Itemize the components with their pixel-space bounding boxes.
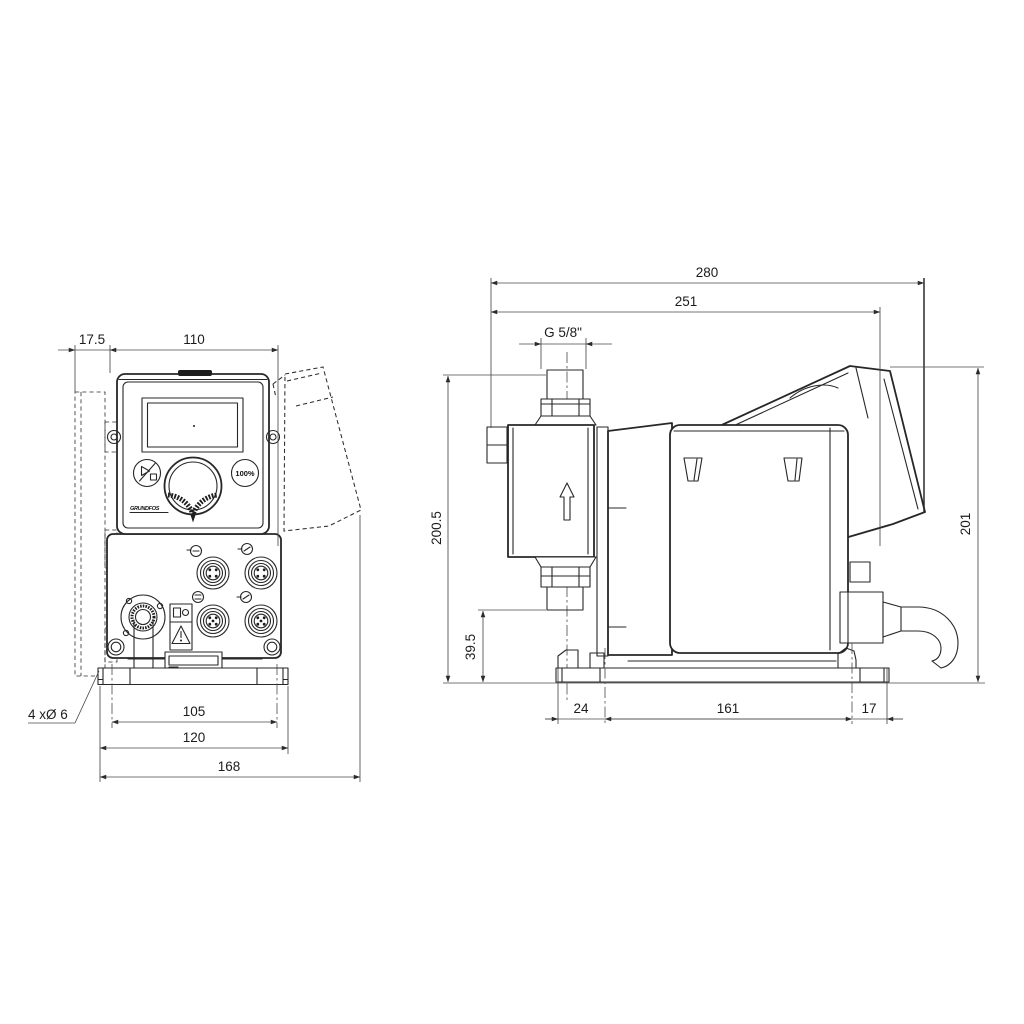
dosing-head <box>487 370 596 610</box>
front-view: 100% GRUNDFOS <box>28 332 361 782</box>
head-flange <box>597 427 608 656</box>
discharge-nut <box>541 399 590 416</box>
dim-suction-height: 39.5 <box>463 634 478 660</box>
cable-gland-taper <box>883 602 901 637</box>
dim-overall-width: 168 <box>218 759 241 774</box>
holes-label: 4 xØ 6 <box>28 707 68 722</box>
boost-100-label: 100% <box>235 469 255 478</box>
dim-offset: 17.5 <box>79 332 105 347</box>
dim-hole-spacing-side: 161 <box>717 701 740 716</box>
dimensional-drawing: 100% GRUNDFOS <box>0 0 1024 1024</box>
side-view: 280 251 G 5/8" 200.5 39.5 201 <box>429 265 985 724</box>
top-tab <box>178 370 212 376</box>
suction-thread <box>547 587 583 610</box>
dim-base-rear: 17 <box>861 701 876 716</box>
mains-cable <box>918 607 958 668</box>
dim-thread: G 5/8" <box>544 325 582 340</box>
lower-housing <box>107 534 281 658</box>
brand-logo: GRUNDFOS <box>130 506 160 512</box>
base-plate <box>98 668 288 685</box>
rear-thread-stub <box>850 562 870 582</box>
dim-cover-depth: 251 <box>675 294 698 309</box>
cover-open-dashed <box>273 367 361 531</box>
discharge-thread <box>547 370 583 399</box>
rear-connections <box>838 562 958 668</box>
cable-connector-box <box>840 592 883 643</box>
control-panel: 100% GRUNDFOS <box>108 370 280 534</box>
dim-base-front: 24 <box>573 701 589 716</box>
dim-overall-height: 201 <box>958 513 973 536</box>
dim-discharge-height: 200.5 <box>429 511 444 545</box>
dim-hole-spacing: 105 <box>183 704 206 719</box>
dim-overall-depth: 280 <box>696 265 719 280</box>
dim-plate-width: 120 <box>183 730 206 745</box>
drive-housing <box>597 423 848 656</box>
drawing-svg: 100% GRUNDFOS <box>0 0 1024 1024</box>
dim-width: 110 <box>183 332 205 347</box>
suction-nut <box>541 567 590 587</box>
